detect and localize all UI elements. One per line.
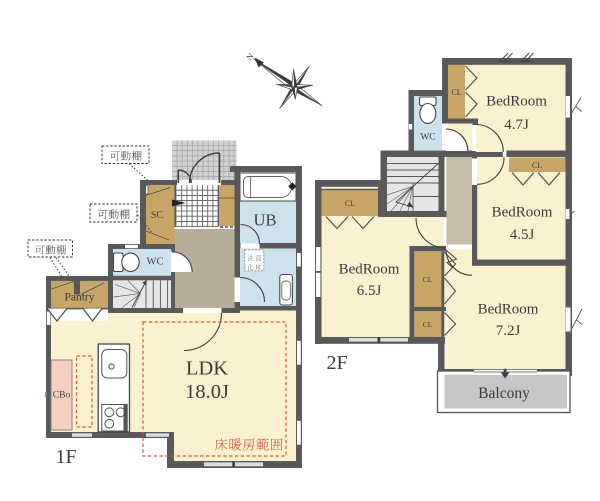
svg-text:BedRoom: BedRoom bbox=[486, 94, 547, 110]
svg-text:BedRoom: BedRoom bbox=[478, 302, 539, 318]
svg-text:CL: CL bbox=[451, 88, 461, 97]
svg-text:4.7J: 4.7J bbox=[504, 117, 529, 133]
svg-text:CL: CL bbox=[423, 320, 433, 329]
svg-text:CL: CL bbox=[423, 275, 433, 284]
svg-text:6.5J: 6.5J bbox=[357, 283, 382, 299]
svg-text:LDK: LDK bbox=[186, 358, 228, 380]
svg-text:BedRoom: BedRoom bbox=[492, 205, 553, 221]
svg-text:UB: UB bbox=[254, 211, 277, 230]
svg-text:CBo: CBo bbox=[53, 391, 71, 401]
svg-text:WC: WC bbox=[420, 133, 435, 143]
svg-text:1F: 1F bbox=[55, 446, 76, 468]
svg-text:WC: WC bbox=[147, 257, 164, 268]
svg-text:2F: 2F bbox=[326, 352, 347, 374]
svg-text:BedRoom: BedRoom bbox=[339, 262, 400, 278]
svg-text:4.5J: 4.5J bbox=[510, 227, 535, 243]
svg-text:SC: SC bbox=[151, 210, 164, 221]
svg-text:18.0J: 18.0J bbox=[185, 381, 229, 403]
svg-text:7.2J: 7.2J bbox=[496, 323, 521, 339]
svg-text:CL: CL bbox=[345, 199, 355, 208]
svg-text:Balcony: Balcony bbox=[478, 385, 530, 402]
svg-text:CL: CL bbox=[532, 161, 542, 170]
